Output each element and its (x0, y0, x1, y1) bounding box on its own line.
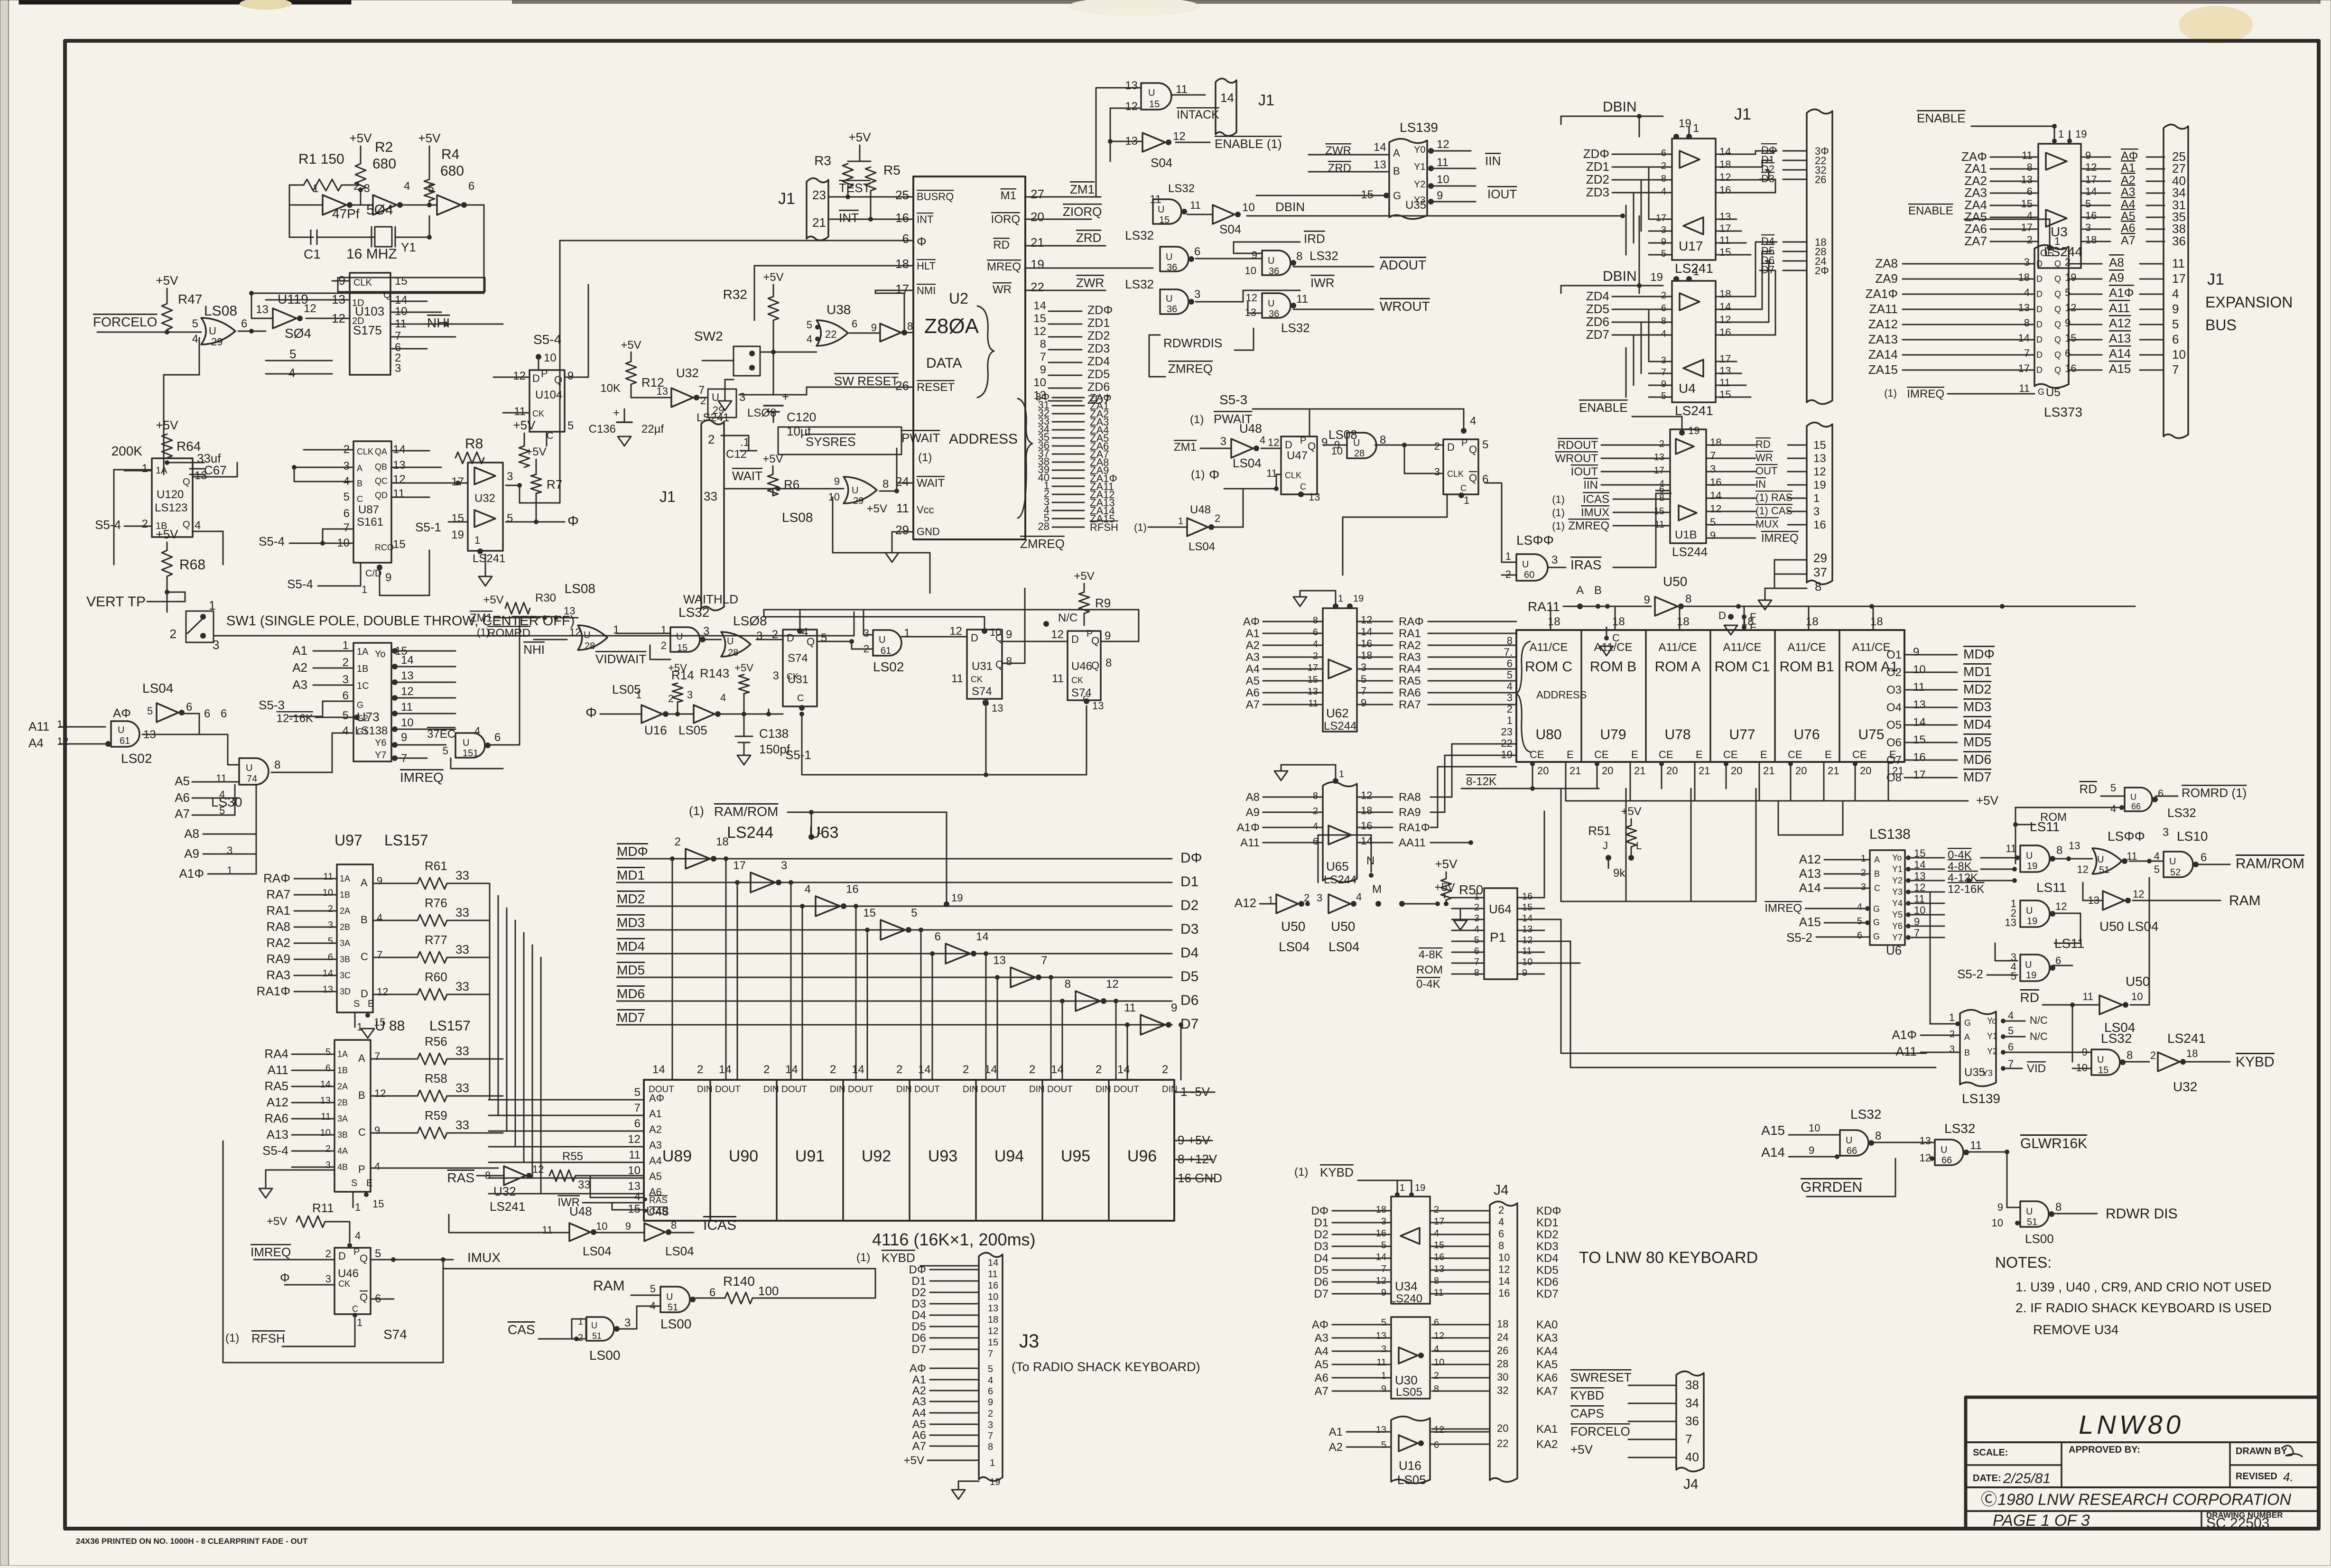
svg-text:R68: R68 (179, 557, 205, 573)
svg-text:6: 6 (328, 952, 333, 963)
svg-text:11: 11 (1190, 199, 1201, 211)
svg-text:14: 14 (401, 654, 414, 667)
svg-text:8: 8 (1434, 1384, 1439, 1394)
svg-text:6: 6 (1313, 836, 1318, 847)
svg-text:RA11: RA11 (1528, 599, 1560, 614)
svg-text:13: 13 (401, 669, 414, 682)
svg-text:LS30: LS30 (211, 795, 242, 809)
svg-text:11: 11 (321, 1112, 331, 1122)
svg-text:2Φ: 2Φ (1815, 265, 1829, 277)
svg-text:29: 29 (853, 496, 864, 506)
svg-text:Q: Q (995, 659, 1003, 670)
svg-text:9: 9 (2065, 317, 2071, 329)
svg-text:LSØ8: LSØ8 (747, 407, 776, 419)
svg-text:KD4: KD4 (1536, 1252, 1559, 1265)
svg-text:10: 10 (1992, 1217, 2003, 1229)
svg-text:15: 15 (2098, 1065, 2108, 1076)
svg-text:DIN: DIN (1162, 1085, 1178, 1095)
svg-text:11: 11 (896, 501, 909, 515)
svg-text:11: 11 (393, 487, 405, 500)
svg-text:U: U (2025, 960, 2032, 970)
svg-text:6: 6 (2008, 1041, 2014, 1053)
svg-text:A: A (358, 1052, 365, 1064)
svg-text:U: U (676, 631, 683, 642)
svg-text:ENABLE: ENABLE (1579, 400, 1628, 415)
svg-text:11: 11 (1719, 234, 1730, 246)
svg-text:KYBD: KYBD (2236, 1054, 2275, 1070)
svg-text:DATE:: DATE: (1973, 1473, 2001, 1484)
svg-text:1A: 1A (357, 647, 369, 657)
svg-text:A3: A3 (649, 1139, 662, 1151)
svg-text:8: 8 (1498, 1240, 1504, 1252)
svg-text:Q: Q (2054, 350, 2061, 360)
svg-text:A14: A14 (1761, 1145, 1785, 1160)
svg-text:8: 8 (1875, 1130, 1881, 1142)
svg-text:20: 20 (1537, 765, 1549, 777)
svg-text:Q: Q (2054, 320, 2061, 329)
svg-text:U38: U38 (827, 302, 851, 317)
svg-text:5: 5 (821, 631, 827, 644)
svg-text:C138: C138 (759, 726, 789, 741)
svg-text:6: 6 (2065, 347, 2071, 359)
svg-text:26: 26 (1497, 1345, 1508, 1356)
svg-text:PWAIT: PWAIT (901, 431, 940, 445)
svg-text:2: 2 (2150, 1049, 2156, 1061)
svg-text:14: 14 (1374, 141, 1386, 154)
svg-text:13: 13 (657, 385, 668, 397)
svg-text:2: 2 (1434, 1205, 1439, 1215)
svg-text:U46: U46 (338, 1267, 359, 1280)
svg-text:1A: 1A (337, 1049, 348, 1059)
svg-text:A12: A12 (1235, 896, 1256, 910)
svg-text:1: 1 (578, 1317, 583, 1327)
svg-text:DOUT: DOUT (781, 1085, 807, 1095)
svg-text:(1): (1) (1294, 1166, 1308, 1178)
svg-text:+5V: +5V (156, 418, 179, 432)
svg-text:10: 10 (1437, 173, 1449, 186)
svg-text:LS240: LS240 (1390, 1292, 1422, 1305)
svg-text:2: 2 (1505, 568, 1511, 580)
svg-text:37EC: 37EC (427, 728, 455, 741)
svg-text:2: 2 (963, 1063, 969, 1076)
svg-text:10: 10 (544, 352, 557, 364)
svg-text:Q: Q (1469, 472, 1477, 484)
svg-text:16: 16 (1498, 1287, 1510, 1299)
svg-text:13: 13 (1376, 1425, 1386, 1435)
svg-text:U78: U78 (1664, 727, 1690, 742)
svg-text:2: 2 (1096, 1063, 1102, 1076)
svg-text:ROMRD (1): ROMRD (1) (2182, 786, 2247, 800)
svg-text:1: 1 (357, 1021, 362, 1033)
svg-text:S175: S175 (353, 323, 382, 337)
svg-text:3: 3 (864, 627, 869, 639)
svg-text:11: 11 (2019, 382, 2030, 394)
svg-text:7: 7 (374, 1050, 380, 1062)
svg-text:MDΦ: MDΦ (1963, 647, 1995, 661)
svg-text:5: 5 (2065, 287, 2071, 298)
svg-text:1: 1 (990, 1458, 995, 1468)
svg-text:14: 14 (1117, 1063, 1130, 1076)
svg-text:40: 40 (1685, 1450, 1699, 1464)
svg-text:4B: 4B (337, 1162, 348, 1172)
svg-text:LS00: LS00 (589, 1348, 620, 1363)
svg-text:WAIT: WAIT (917, 477, 945, 490)
svg-text:NMI: NMI (917, 285, 936, 297)
svg-text:1: 1 (362, 584, 367, 595)
svg-text:4-8K: 4-8K (1948, 860, 1972, 873)
svg-text:1. U39 , U40 , CR9, AND CRIO: 1. U39 , U40 , CR9, AND CRIO NOT USED (2015, 1280, 2271, 1294)
svg-text:D6: D6 (911, 1332, 926, 1345)
svg-text:19: 19 (2065, 271, 2076, 283)
svg-text:ROM C: ROM C (1525, 659, 1572, 675)
svg-text:12: 12 (1813, 465, 1826, 478)
svg-text:18: 18 (716, 835, 729, 848)
svg-text:Y1: Y1 (401, 240, 416, 254)
svg-text:9: 9 (1809, 1144, 1814, 1156)
svg-text:SW2: SW2 (694, 329, 723, 343)
svg-text:1A: 1A (340, 874, 350, 883)
svg-text:KYBD: KYBD (882, 1251, 915, 1265)
svg-text:13: 13 (320, 1095, 331, 1106)
svg-text:5Ø4: 5Ø4 (366, 202, 393, 218)
svg-text:J1: J1 (659, 488, 676, 505)
svg-text:U: U (2026, 906, 2033, 916)
svg-text:29: 29 (895, 523, 909, 537)
svg-text:3: 3 (364, 182, 370, 195)
svg-text:21: 21 (1031, 235, 1044, 250)
svg-text:16: 16 (1719, 326, 1731, 338)
svg-text:U79: U79 (1600, 727, 1626, 742)
svg-text:3: 3 (343, 673, 349, 686)
svg-text:A: A (1393, 147, 1400, 159)
svg-text:10: 10 (1913, 663, 1926, 676)
svg-text:36: 36 (1269, 309, 1279, 319)
svg-text:680: 680 (372, 156, 396, 172)
svg-text:D3: D3 (1761, 173, 1774, 185)
svg-text:2: 2 (1661, 161, 1666, 171)
svg-text:IMREQ: IMREQ (1907, 388, 1944, 400)
svg-text:DIN: DIN (1029, 1085, 1045, 1095)
svg-text:7: 7 (988, 1431, 993, 1441)
svg-text:5: 5 (2172, 317, 2179, 331)
svg-text:12: 12 (2085, 161, 2097, 173)
svg-text:17: 17 (1434, 1216, 1444, 1227)
svg-text:1: 1 (1507, 714, 1513, 726)
svg-text:U76: U76 (1793, 727, 1820, 742)
svg-text:A4: A4 (2121, 198, 2136, 211)
svg-text:0-4K: 0-4K (1948, 849, 1972, 862)
svg-text:36: 36 (1685, 1414, 1699, 1428)
svg-text:+5V: +5V (1621, 805, 1641, 818)
svg-text:28: 28 (1354, 448, 1365, 459)
svg-text:CAS: CAS (508, 1322, 535, 1337)
svg-text:RA8: RA8 (1399, 791, 1421, 804)
svg-text:+5V: +5V (483, 594, 503, 606)
svg-text:AΦ: AΦ (1243, 615, 1260, 628)
svg-text:5: 5 (344, 491, 350, 503)
svg-text:13: 13 (393, 459, 406, 472)
svg-text:O7: O7 (1886, 754, 1902, 767)
svg-text:60: 60 (1524, 570, 1534, 580)
svg-text:(1): (1) (1884, 387, 1897, 399)
svg-text:D1: D1 (1180, 874, 1198, 890)
svg-text:10: 10 (2131, 991, 2143, 1002)
svg-text:3: 3 (1381, 1344, 1386, 1355)
svg-text:LS05: LS05 (1397, 1473, 1426, 1487)
svg-text:O5: O5 (1886, 719, 1902, 732)
svg-text:LS244: LS244 (727, 824, 773, 842)
svg-text:U16: U16 (644, 723, 667, 737)
svg-text:4A: 4A (337, 1146, 348, 1156)
svg-text:14: 14 (1913, 716, 1926, 729)
svg-text:19: 19 (2027, 861, 2037, 872)
svg-text:LS157: LS157 (429, 1018, 471, 1034)
svg-text:A11/CE: A11/CE (1723, 641, 1762, 654)
svg-text:2: 2 (830, 1063, 836, 1076)
svg-text:LS08: LS08 (204, 303, 237, 319)
svg-text:U16: U16 (1399, 1458, 1421, 1473)
svg-text:CLK: CLK (1447, 469, 1464, 479)
svg-text:Z8ØA: Z8ØA (924, 315, 979, 338)
svg-text:2: 2 (697, 1063, 703, 1076)
svg-text:U: U (852, 485, 858, 496)
svg-text:MD1: MD1 (1963, 664, 1991, 679)
svg-text:8: 8 (882, 478, 889, 491)
svg-text:3: 3 (2085, 222, 2091, 233)
svg-text:11: 11 (401, 701, 413, 714)
svg-text:S5-1: S5-1 (415, 520, 441, 534)
svg-text:14: 14 (1719, 146, 1731, 158)
svg-text:C1: C1 (304, 247, 321, 261)
svg-text:SYSRES: SYSRES (806, 435, 856, 449)
svg-text:12: 12 (1051, 628, 1064, 641)
svg-text:1: 1 (1505, 550, 1511, 562)
svg-text:D7: D7 (1314, 1288, 1328, 1300)
svg-text:(1): (1) (225, 1332, 239, 1345)
svg-text:A6: A6 (175, 790, 190, 805)
svg-text:LS04: LS04 (665, 1244, 694, 1258)
svg-text:+5V: +5V (1435, 857, 1458, 871)
svg-text:Q: Q (2054, 305, 2061, 314)
svg-text:14: 14 (976, 930, 989, 943)
svg-text:1: 1 (1464, 494, 1469, 506)
svg-text:ZA13: ZA13 (1868, 332, 1898, 346)
svg-text:LS32: LS32 (2101, 1031, 2132, 1046)
svg-text:12: 12 (1268, 436, 1279, 448)
svg-text:3A: 3A (340, 938, 350, 948)
svg-text:ROMRD: ROMRD (487, 627, 530, 640)
svg-text:Y7: Y7 (1892, 933, 1903, 942)
svg-text:A6: A6 (2121, 222, 2136, 235)
svg-text:7: 7 (1661, 367, 1666, 378)
svg-text:4: 4 (1313, 821, 1318, 832)
svg-text:U: U (879, 635, 885, 645)
svg-text:LS11: LS11 (2054, 936, 2084, 951)
svg-text:17: 17 (1656, 213, 1666, 223)
svg-text:P: P (1300, 436, 1306, 446)
svg-text:19: 19 (951, 892, 963, 904)
svg-text:U50: U50 (2126, 974, 2150, 989)
svg-text:U48: U48 (646, 1204, 669, 1218)
svg-text:A1: A1 (1329, 1426, 1343, 1438)
svg-text:12: 12 (628, 1133, 641, 1146)
svg-text:16: 16 (1434, 1252, 1444, 1262)
svg-text:3: 3 (1661, 225, 1666, 235)
svg-text:9: 9 (1105, 630, 1111, 642)
svg-text:MD6: MD6 (1963, 752, 1991, 767)
svg-text:A3: A3 (292, 677, 307, 692)
svg-text:12: 12 (532, 1163, 544, 1175)
svg-text:WR: WR (993, 283, 1012, 296)
svg-text:13: 13 (993, 954, 1006, 967)
svg-text:ZA7: ZA7 (1964, 234, 1987, 248)
svg-text:15: 15 (1719, 246, 1731, 258)
svg-text:5: 5 (328, 936, 333, 946)
svg-text:1: 1 (2054, 235, 2060, 247)
svg-text:D: D (2036, 335, 2043, 344)
svg-text:B: B (357, 479, 362, 488)
svg-text:8: 8 (1105, 657, 1112, 669)
svg-text:IRAS: IRAS (1570, 557, 1601, 572)
svg-text:SWRESET: SWRESET (1570, 1370, 1632, 1384)
svg-text:B: B (1594, 584, 1602, 597)
svg-text:19: 19 (990, 1477, 1000, 1487)
svg-text:13: 13 (1719, 211, 1731, 223)
svg-text:9: 9 (2085, 149, 2091, 161)
svg-text:5: 5 (1710, 516, 1716, 528)
svg-text:DIN: DIN (1096, 1085, 1111, 1095)
svg-text:9: 9 (374, 1124, 380, 1136)
svg-text:U30: U30 (1395, 1373, 1418, 1387)
svg-text:U31: U31 (972, 660, 993, 673)
svg-text:12: 12 (949, 625, 962, 638)
svg-text:RA1: RA1 (1399, 627, 1421, 640)
svg-text:9: 9 (1381, 1384, 1386, 1394)
svg-text:2A: 2A (337, 1082, 348, 1091)
svg-text:2: 2 (170, 627, 176, 641)
svg-text:16: 16 (2065, 362, 2076, 374)
svg-text:2A: 2A (340, 906, 350, 916)
svg-text:23: 23 (1501, 726, 1513, 738)
svg-text:DIN: DIN (763, 1085, 779, 1095)
svg-text:U32: U32 (2173, 1079, 2197, 1094)
svg-text:9: 9 (625, 1220, 631, 1232)
svg-text:A3: A3 (1246, 651, 1260, 664)
svg-text:G: G (1873, 932, 1880, 941)
svg-text:ZA8: ZA8 (1875, 256, 1898, 270)
svg-text:18: 18 (1710, 436, 1721, 448)
svg-text:13: 13 (1376, 1331, 1386, 1341)
svg-text:2: 2 (1162, 1063, 1168, 1076)
svg-text:D5: D5 (911, 1320, 926, 1333)
svg-text:2: 2 (896, 1063, 902, 1076)
svg-text:+5V: +5V (267, 1215, 287, 1228)
svg-text:LS32: LS32 (1125, 277, 1154, 291)
svg-text:51: 51 (592, 1331, 602, 1341)
svg-text:A2: A2 (292, 660, 307, 675)
svg-text:3: 3 (1950, 1044, 1955, 1055)
svg-text:E: E (368, 999, 374, 1009)
svg-text:DIN: DIN (896, 1085, 912, 1095)
svg-text:CE: CE (1659, 749, 1673, 761)
svg-text:A1Φ: A1Φ (179, 866, 204, 881)
svg-text:27: 27 (1031, 187, 1044, 201)
svg-text:GRRDEN: GRRDEN (1801, 1179, 1862, 1195)
svg-text:+5V: +5V (156, 273, 179, 288)
svg-text:5: 5 (911, 907, 917, 919)
svg-text:51: 51 (668, 1302, 678, 1313)
svg-text:3: 3 (773, 669, 779, 682)
svg-text:17: 17 (2018, 362, 2030, 374)
svg-text:9: 9 (1361, 697, 1366, 709)
svg-text:D: D (2036, 365, 2043, 375)
svg-text:1: 1 (1949, 1011, 1955, 1023)
svg-text:U32: U32 (676, 366, 699, 380)
svg-text:8: 8 (2127, 1049, 2133, 1062)
svg-text:+5V: +5V (668, 662, 687, 674)
svg-text:20: 20 (1031, 210, 1044, 224)
svg-text:U48: U48 (1190, 503, 1211, 516)
svg-text:11: 11 (2082, 991, 2093, 1002)
svg-text:8: 8 (1474, 968, 1479, 978)
svg-text:IMUX: IMUX (1581, 506, 1609, 519)
svg-text:ZD5: ZD5 (1586, 302, 1609, 316)
svg-text:KA6: KA6 (1536, 1372, 1558, 1384)
svg-text:6: 6 (709, 1286, 715, 1299)
svg-text:11: 11 (1052, 672, 1064, 685)
svg-text:14: 14 (852, 1063, 864, 1076)
svg-text:A7: A7 (1315, 1385, 1328, 1398)
svg-text:RA7: RA7 (1399, 698, 1421, 711)
svg-text:LS11: LS11 (2036, 880, 2066, 895)
svg-text:CE: CE (1594, 749, 1609, 761)
svg-text:LS241: LS241 (2167, 1031, 2206, 1046)
svg-text:RA9: RA9 (266, 952, 290, 966)
svg-text:A6: A6 (1246, 687, 1260, 699)
svg-text:6: 6 (1474, 946, 1479, 956)
svg-text:R6: R6 (784, 477, 799, 492)
svg-text:ADDRESS: ADDRESS (949, 431, 1018, 447)
svg-text:DBIN: DBIN (1603, 99, 1637, 115)
svg-text:U96: U96 (1127, 1147, 1157, 1165)
svg-text:7: 7 (1361, 685, 1366, 697)
svg-text:LS00: LS00 (660, 1317, 691, 1331)
svg-text:(1): (1) (1190, 413, 1204, 426)
svg-text:26: 26 (1815, 174, 1826, 186)
svg-text:KA2: KA2 (1536, 1438, 1558, 1451)
svg-text:U: U (1846, 1135, 1852, 1146)
svg-text:19: 19 (2075, 128, 2087, 140)
svg-text:10: 10 (1434, 1357, 1444, 1368)
svg-text:A4: A4 (649, 1155, 662, 1167)
svg-text:2: 2 (353, 180, 360, 193)
svg-text:16: 16 (1710, 476, 1721, 488)
svg-text:RAM: RAM (2229, 893, 2261, 909)
svg-text:4: 4 (2172, 287, 2179, 301)
svg-text:4: 4 (192, 333, 198, 345)
svg-text:8: 8 (1815, 579, 1821, 594)
svg-text:EXPANSION: EXPANSION (2205, 294, 2293, 311)
svg-text:5: 5 (375, 1247, 381, 1260)
svg-text:11: 11 (629, 1149, 641, 1161)
svg-text:U48: U48 (1239, 421, 1262, 436)
svg-text:U: U (584, 630, 590, 640)
svg-text:4-12K: 4-12K (1948, 872, 1978, 884)
svg-text:Y1: Y1 (1414, 162, 1425, 172)
svg-text:19: 19 (1688, 425, 1699, 436)
svg-text:7.: 7. (1504, 646, 1513, 658)
svg-text:1: 1 (1339, 769, 1344, 779)
